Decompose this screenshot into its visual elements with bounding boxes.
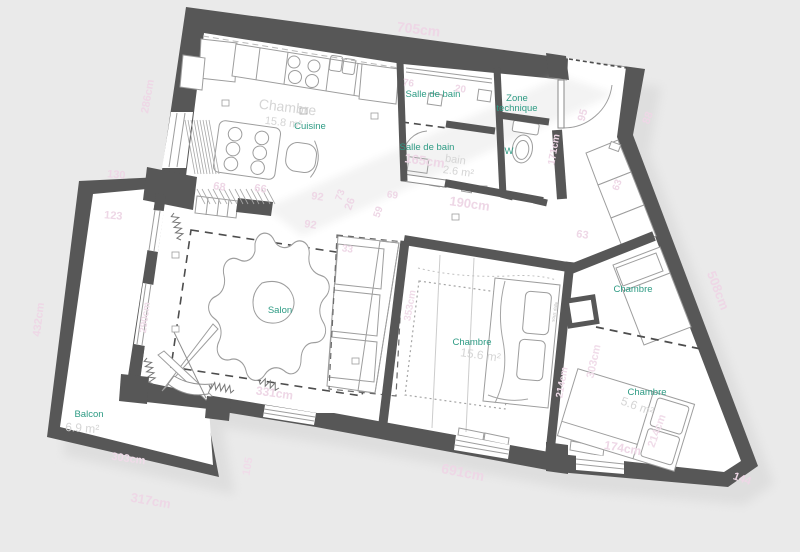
svg-text:123: 123 (104, 209, 123, 223)
svg-text:Salon: Salon (268, 305, 292, 316)
svg-text:Chambre: Chambre (613, 284, 652, 295)
svg-text:6.9 m²: 6.9 m² (65, 420, 100, 436)
svg-text:69: 69 (386, 189, 399, 202)
svg-text:W: W (505, 146, 514, 157)
svg-text:Salle de bain: Salle de bain (406, 89, 461, 100)
svg-text:Balcon: Balcon (74, 409, 103, 420)
svg-text:92: 92 (311, 190, 325, 204)
svg-text:76: 76 (402, 77, 415, 90)
svg-text:33: 33 (341, 243, 354, 256)
svg-text:130: 130 (107, 168, 126, 182)
svg-text:68: 68 (213, 180, 227, 194)
svg-text:63: 63 (576, 228, 590, 242)
svg-text:92: 92 (304, 218, 318, 232)
svg-text:technique: technique (496, 103, 537, 114)
svg-text:66: 66 (254, 182, 268, 196)
svg-text:20: 20 (454, 83, 467, 96)
